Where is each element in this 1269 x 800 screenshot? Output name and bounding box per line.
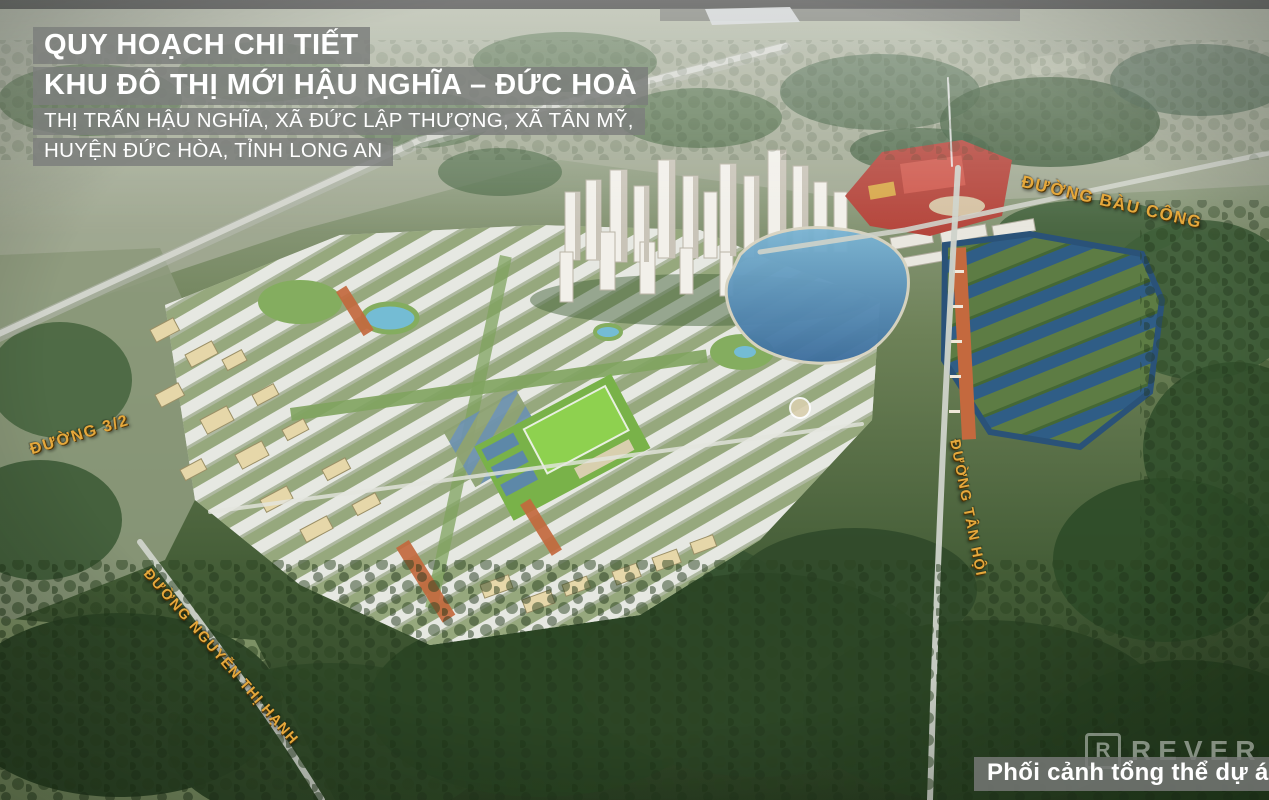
- title-line-2: KHU ĐÔ THỊ MỚI HẬU NGHĨA – ĐỨC HOÀ: [33, 67, 648, 104]
- title-line-4: HUYỆN ĐỨC HÒA, TỈNH LONG AN: [33, 138, 393, 166]
- caption-bar: Phối cảnh tổng thể dự án: [974, 757, 1269, 791]
- title-line-3: THỊ TRẤN HẬU NGHĨA, XÃ ĐỨC LẬP THƯỢNG, X…: [33, 108, 645, 136]
- title-block: QUY HOẠCH CHI TIẾT KHU ĐÔ THỊ MỚI HẬU NG…: [33, 27, 648, 169]
- masterplan-screenshot: QUY HOẠCH CHI TIẾT KHU ĐÔ THỊ MỚI HẬU NG…: [0, 0, 1269, 800]
- title-line-1: QUY HOẠCH CHI TIẾT: [33, 27, 370, 64]
